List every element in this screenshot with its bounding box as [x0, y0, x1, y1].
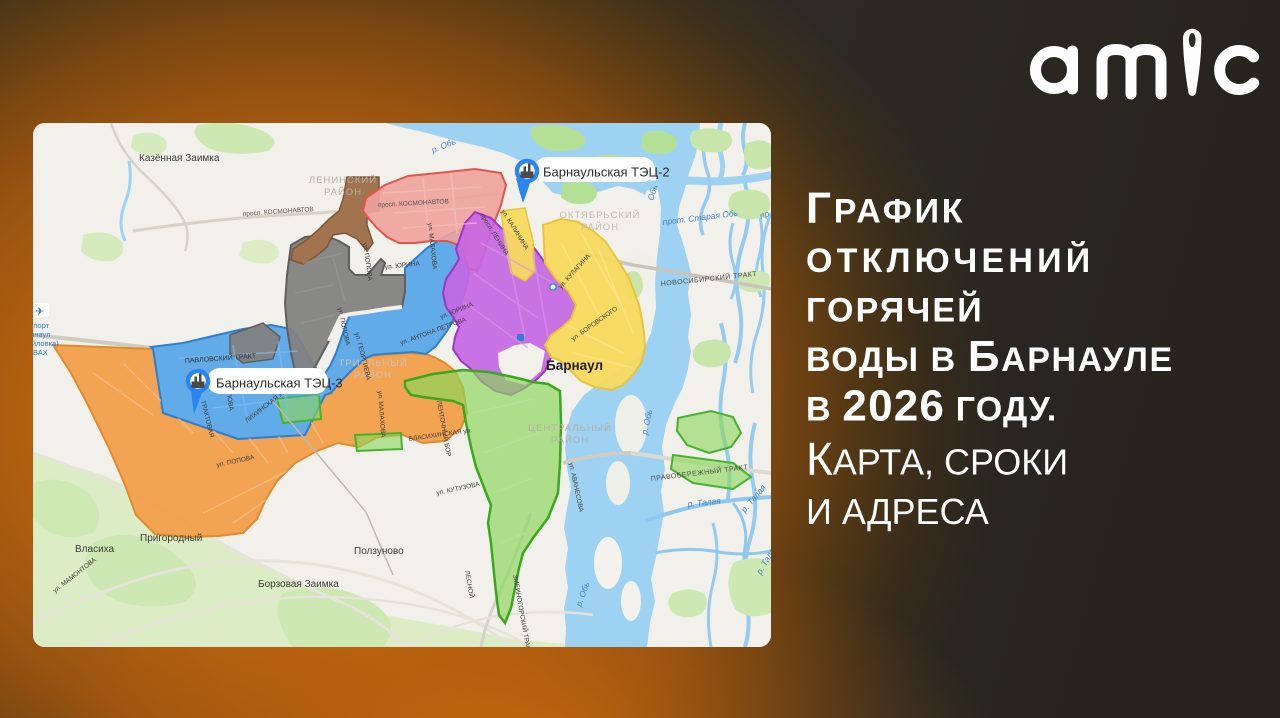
svg-text:Пригородный: Пригородный	[140, 533, 202, 544]
svg-text:ОКТЯБРЬСКИЙ: ОКТЯБРЬСКИЙ	[559, 209, 640, 221]
svg-text:И АДРЕСА: И АДРЕСА	[806, 491, 989, 532]
svg-text:Борзовая Заимка: Борзовая Заимка	[258, 579, 339, 590]
svg-text:ЛЕНИНСКИЙ: ЛЕНИНСКИЙ	[309, 174, 377, 186]
svg-text:ГРАФИК: ГРАФИК	[806, 184, 965, 233]
svg-text:ГОРЯЧЕЙ: ГОРЯЧЕЙ	[806, 291, 984, 330]
svg-text:✈: ✈	[35, 306, 44, 318]
svg-text:Барнаул: Барнаул	[33, 330, 50, 339]
svg-text:РАЙОН: РАЙОН	[551, 434, 589, 446]
svg-text:Барнаульская ТЭЦ-3: Барнаульская ТЭЦ-3	[216, 376, 343, 391]
svg-text:КАРТА, СРОКИ: КАРТА, СРОКИ	[806, 433, 1068, 485]
svg-text:ТРИАЛЬНЫЙ: ТРИАЛЬНЫЙ	[338, 357, 407, 369]
svg-text:Барнаул: Барнаул	[546, 358, 603, 373]
svg-text:аэропорт: аэропорт	[33, 321, 50, 330]
svg-text:Власиха: Власиха	[75, 544, 115, 555]
svg-text:ОТКЛЮЧЕНИЙ: ОТКЛЮЧЕНИЙ	[806, 241, 1094, 280]
svg-text:ВАХ: ВАХ	[33, 348, 48, 357]
svg-text:ЦЕНТРАЛЬНЫЙ: ЦЕНТРАЛЬНЫЙ	[528, 422, 612, 434]
svg-text:В 2026 ГОДУ.: В 2026 ГОДУ.	[806, 382, 1058, 431]
svg-text:РАЙОН: РАЙОН	[324, 186, 362, 198]
svg-text:(Михайловка): (Михайловка)	[33, 339, 59, 348]
svg-text:Барнаульская ТЭЦ-2: Барнаульская ТЭЦ-2	[543, 165, 670, 180]
svg-text:Казённая Заимка: Казённая Заимка	[139, 153, 220, 164]
svg-text:РАЙОН: РАЙОН	[354, 369, 392, 381]
svg-text:РАЙОН: РАЙОН	[581, 221, 619, 233]
svg-text:Ползуново: Ползуново	[354, 546, 404, 557]
svg-text:ВОДЫ В БАРНАУЛЕ: ВОДЫ В БАРНАУЛЕ	[806, 332, 1174, 381]
